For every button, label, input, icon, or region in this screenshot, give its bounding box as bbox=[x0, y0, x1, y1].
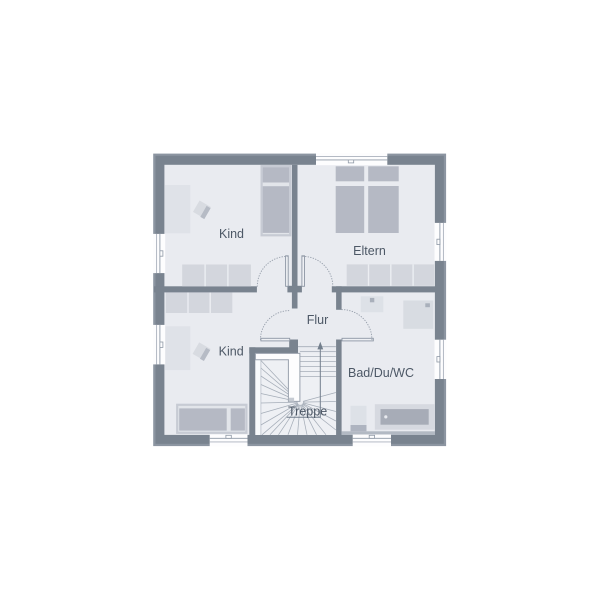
svg-text:Treppe: Treppe bbox=[288, 405, 327, 419]
svg-text:Eltern: Eltern bbox=[353, 244, 386, 258]
svg-text:Bad/Du/WC: Bad/Du/WC bbox=[348, 366, 414, 380]
svg-text:Flur: Flur bbox=[307, 313, 329, 327]
svg-text:Kind: Kind bbox=[219, 345, 244, 359]
svg-text:Kind: Kind bbox=[219, 227, 244, 241]
